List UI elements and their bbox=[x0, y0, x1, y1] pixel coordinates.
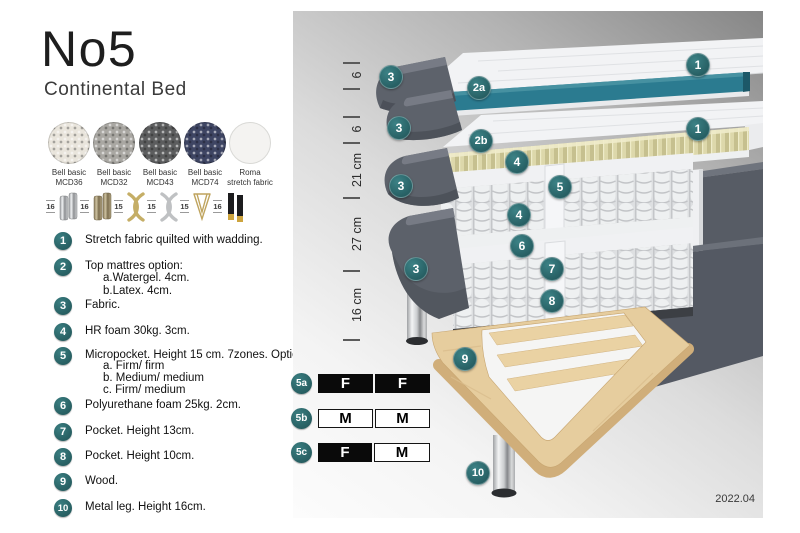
callout-fabric-lower: 3 bbox=[404, 257, 428, 281]
ruler-tick bbox=[343, 62, 360, 64]
firmness-cell: M bbox=[375, 409, 430, 428]
part-text-8: Pocket. Height 10cm. bbox=[85, 450, 194, 462]
part-text-10: Metal leg. Height 16cm. bbox=[85, 501, 206, 513]
fabric-swatch-roma bbox=[229, 122, 271, 164]
ruler-label-latex: 6 bbox=[350, 126, 364, 133]
leg-height: 15 bbox=[180, 200, 189, 213]
ruler-label-topper: 6 bbox=[350, 72, 364, 79]
fabric-label: Roma stretch fabric bbox=[223, 168, 277, 187]
leg-tapered-black-gold-icon bbox=[223, 190, 249, 222]
part-text-6: Polyurethane foam 25kg. 2cm. bbox=[85, 399, 241, 411]
callout-hr-foam-top: 4 bbox=[505, 150, 529, 174]
firmness-cell: F bbox=[375, 374, 430, 393]
ruler-label-lower: 27 cm bbox=[350, 217, 364, 251]
ruler-label-middle: 21 cm bbox=[350, 153, 364, 187]
part-5-sub-b: b. Medium/ medium bbox=[103, 372, 204, 384]
part-number-9: 9 bbox=[54, 473, 72, 491]
firmness-row-5a: F F bbox=[318, 374, 430, 393]
ruler-tick bbox=[343, 88, 360, 90]
leg-twist-gold-icon bbox=[124, 190, 148, 222]
callout-fabric-topper: 3 bbox=[379, 65, 403, 89]
callout-fabric-middle: 3 bbox=[389, 174, 413, 198]
leg-option-twist-gold: 15 bbox=[114, 190, 148, 222]
callout-pocket-10: 8 bbox=[540, 289, 564, 313]
part-number-5: 5 bbox=[54, 347, 72, 365]
ruler-label-base: 16 cm bbox=[350, 288, 364, 322]
callout-polyurethane: 6 bbox=[510, 234, 534, 258]
fabric-swatch-mcd32 bbox=[93, 122, 135, 164]
firmness-cell: F bbox=[318, 374, 373, 393]
part-number-4: 4 bbox=[54, 323, 72, 341]
callout-micropocket: 5 bbox=[548, 175, 572, 199]
leg-option-tapered-black-gold: 16 bbox=[213, 190, 249, 222]
fabric-name: Roma bbox=[223, 168, 277, 178]
part-number-10: 10 bbox=[54, 499, 72, 517]
callout-stretch-fabric-top: 1 bbox=[686, 53, 710, 77]
leg-cylinder-bronze-icon bbox=[90, 190, 116, 222]
part-number-7: 7 bbox=[54, 423, 72, 441]
leg-option-cylinder-bronze: 16 bbox=[80, 190, 116, 222]
leg-option-cylinder-chrome: 16 bbox=[46, 190, 82, 222]
version-stamp: 2022.04 bbox=[715, 493, 755, 505]
page-title: No5 bbox=[41, 20, 137, 78]
page-subtitle: Continental Bed bbox=[44, 79, 187, 101]
leg-height: 15 bbox=[147, 200, 156, 213]
fabric-swatch-mcd36 bbox=[48, 122, 90, 164]
callout-watergel-2a: 2a bbox=[467, 76, 491, 100]
callout-hr-foam-bottom: 4 bbox=[507, 203, 531, 227]
part-text-2: Top mattres option: bbox=[85, 260, 183, 272]
part-number-2: 2 bbox=[54, 258, 72, 276]
page: { "header": { "title": "No5", "subtitle"… bbox=[0, 0, 800, 533]
callout-pocket-13: 7 bbox=[540, 257, 564, 281]
part-2-sub-a: a.Watergel. 4cm. bbox=[103, 272, 190, 284]
leg-cylinder-chrome-icon bbox=[56, 190, 82, 222]
firmness-label-5a: 5a bbox=[291, 373, 312, 394]
part-5-sub-c: c. Firm/ medium bbox=[103, 384, 185, 396]
firmness-cell: F bbox=[318, 443, 372, 462]
part-text-7: Pocket. Height 13cm. bbox=[85, 425, 194, 437]
callout-stretch-fabric-layer2: 1 bbox=[686, 117, 710, 141]
firmness-cell: M bbox=[318, 409, 373, 428]
leg-option-twist-silver: 15 bbox=[147, 190, 181, 222]
part-number-1: 1 bbox=[54, 232, 72, 250]
part-text-3: Fabric. bbox=[85, 299, 120, 311]
fabric-code: stretch fabric bbox=[223, 178, 277, 188]
part-5-sub-a: a. Firm/ firm bbox=[103, 360, 164, 372]
leg-height: 15 bbox=[114, 200, 123, 213]
part-number-3: 3 bbox=[54, 297, 72, 315]
fabric-swatch-mcd74 bbox=[184, 122, 226, 164]
firmness-row-5b: M M bbox=[318, 409, 430, 428]
leg-height: 16 bbox=[213, 200, 222, 213]
part-number-6: 6 bbox=[54, 397, 72, 415]
firmness-label-5b: 5b bbox=[291, 408, 312, 429]
firmness-label-5c: 5c bbox=[291, 442, 312, 463]
firmness-cell: M bbox=[374, 443, 430, 462]
bed-exploded-illustration bbox=[293, 11, 763, 518]
leg-hairpin-gold-icon bbox=[190, 190, 214, 222]
ruler-tick bbox=[343, 116, 360, 118]
leg-twist-silver-icon bbox=[157, 190, 181, 222]
callout-latex-2b: 2b bbox=[469, 129, 493, 153]
ruler-tick bbox=[343, 339, 360, 341]
part-text-4: HR foam 30kg. 3cm. bbox=[85, 325, 190, 337]
fabric-swatch-mcd43 bbox=[139, 122, 181, 164]
part-text-1: Stretch fabric quilted with wadding. bbox=[85, 234, 263, 246]
part-text-9: Wood. bbox=[85, 475, 118, 487]
ruler-tick bbox=[343, 142, 360, 144]
part-number-8: 8 bbox=[54, 448, 72, 466]
part-2-sub-b: b.Latex. 4cm. bbox=[103, 285, 172, 297]
bed-diagram-panel: 6 6 21 cm 27 cm 16 cm 1 3 2a 3 2b 1 4 3 … bbox=[293, 11, 763, 518]
leg-option-hairpin-gold: 15 bbox=[180, 190, 214, 222]
ruler-tick bbox=[343, 197, 360, 199]
leg-height: 16 bbox=[80, 200, 89, 213]
callout-metal-leg: 10 bbox=[466, 461, 490, 485]
callout-wood: 9 bbox=[453, 347, 477, 371]
leg-height: 16 bbox=[46, 200, 55, 213]
ruler-tick bbox=[343, 270, 360, 272]
firmness-row-5c: F M bbox=[318, 443, 430, 462]
callout-fabric-layer2: 3 bbox=[387, 116, 411, 140]
